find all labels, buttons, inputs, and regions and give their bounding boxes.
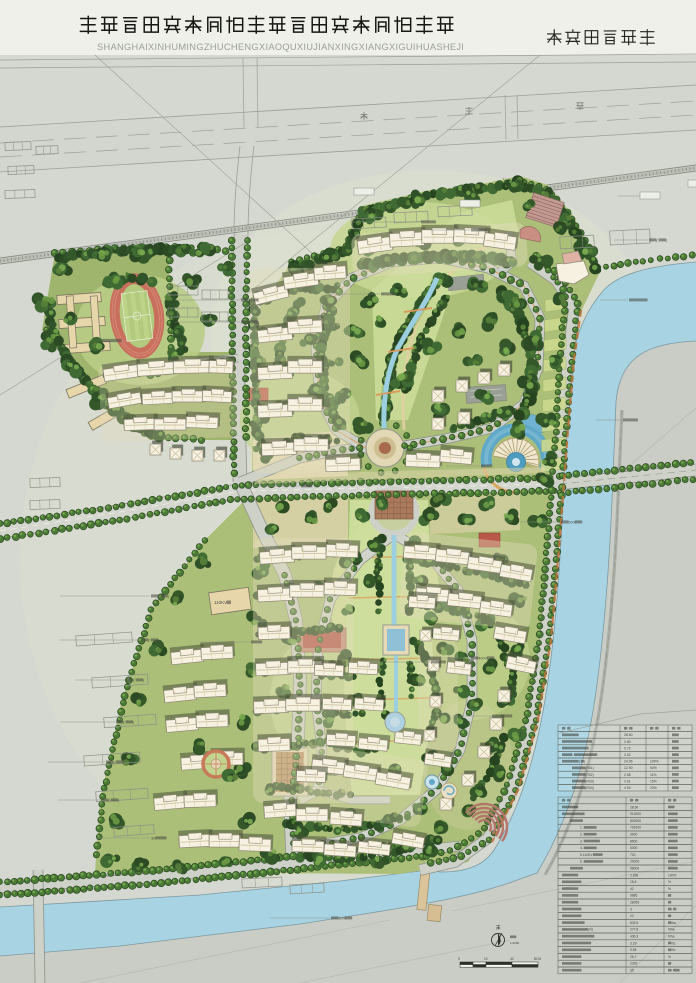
svg-text:28055: 28055 <box>630 901 639 905</box>
svg-text:277.8: 277.8 <box>630 928 638 932</box>
svg-text:100%: 100% <box>668 873 677 877</box>
svg-text:(R04): (R04) <box>585 786 593 790</box>
svg-text:8500: 8500 <box>630 839 638 843</box>
svg-text:5.110KV: 5.110KV <box>580 853 593 857</box>
svg-text:24.06: 24.06 <box>624 760 633 764</box>
svg-text:3.29: 3.29 <box>630 941 637 945</box>
svg-text:1.: 1. <box>580 826 583 830</box>
svg-text:28.60: 28.60 <box>630 805 638 809</box>
svg-text:4.90: 4.90 <box>624 786 631 790</box>
svg-text:5.88: 5.88 <box>630 948 637 952</box>
svg-text:42: 42 <box>630 887 634 891</box>
svg-text:/hc: /hc <box>671 941 676 945</box>
svg-text:2.: 2. <box>580 833 583 837</box>
svg-text:2339: 2339 <box>630 962 638 966</box>
svg-text:833.5: 833.5 <box>630 921 638 925</box>
svg-text:100%: 100% <box>650 760 659 764</box>
svg-text:5300: 5300 <box>630 846 638 850</box>
svg-text:11%: 11% <box>650 773 657 777</box>
svg-text:/ha: /ha <box>671 921 676 925</box>
svg-text:80 M: 80 M <box>534 957 541 961</box>
svg-text:/hc: /hc <box>671 948 676 952</box>
svg-text:30m: 30m <box>338 916 345 920</box>
svg-text:%: % <box>668 887 671 891</box>
svg-text:SHANGHAIXINHUMINGZHUCHENGXIAOQ: SHANGHAIXINHUMINGZHUCHENGXIAOQUXIUJIANXI… <box>97 42 464 52</box>
svg-text:15%: 15% <box>650 779 657 783</box>
svg-text:%: % <box>668 880 671 884</box>
svg-text:6.: 6. <box>580 860 583 864</box>
svg-text:(%): (%) <box>588 928 593 932</box>
svg-text:6885: 6885 <box>630 894 638 898</box>
svg-text:35: 35 <box>630 969 634 973</box>
svg-text:496.3: 496.3 <box>630 935 638 939</box>
svg-text:4.: 4. <box>580 846 583 850</box>
svg-text:791600: 791600 <box>630 826 641 830</box>
svg-text:3.02: 3.02 <box>624 753 631 757</box>
svg-text:): ) <box>584 760 585 764</box>
svg-text:110KV: 110KV <box>214 600 227 605</box>
svg-text:1:2000: 1:2000 <box>510 941 520 945</box>
svg-text:(R01): (R01) <box>585 766 593 770</box>
svg-text:/: / <box>671 907 672 911</box>
svg-text:98000: 98000 <box>630 867 639 871</box>
svg-text:50m: 50m <box>568 520 575 524</box>
svg-text:28.60: 28.60 <box>624 733 633 737</box>
svg-text:0.72: 0.72 <box>624 746 631 750</box>
svg-text:%: % <box>668 955 671 959</box>
svg-text:2.80: 2.80 <box>624 740 631 744</box>
svg-text:3.: 3. <box>580 839 583 843</box>
svg-text:/: / <box>572 753 573 757</box>
svg-text:2.899: 2.899 <box>630 873 638 877</box>
svg-text:400m: 400m <box>478 656 488 660</box>
svg-text:20000: 20000 <box>630 860 639 864</box>
svg-text:54%: 54% <box>650 766 657 770</box>
svg-text:40: 40 <box>510 957 514 961</box>
svg-text:26.7: 26.7 <box>630 955 637 959</box>
svg-text:0: 0 <box>458 957 460 961</box>
svg-text:12.90: 12.90 <box>624 766 633 770</box>
svg-text:2.65: 2.65 <box>624 773 631 777</box>
svg-text:720: 720 <box>630 853 636 857</box>
svg-text:(R02): (R02) <box>585 773 593 777</box>
svg-text:#/ha: #/ha <box>668 935 675 939</box>
svg-text:20%: 20% <box>650 786 657 790</box>
svg-text:3.61: 3.61 <box>624 779 631 783</box>
svg-text:18.6: 18.6 <box>630 880 637 884</box>
svg-text:829200: 829200 <box>630 819 641 823</box>
svg-text:22: 22 <box>630 914 634 918</box>
svg-text:#/ha: #/ha <box>668 928 675 932</box>
svg-text:/: / <box>671 969 672 973</box>
svg-text:919200: 919200 <box>630 812 641 816</box>
svg-text:10: 10 <box>484 957 488 961</box>
svg-text:(R03): (R03) <box>585 779 593 783</box>
svg-text:3: 3 <box>630 907 632 911</box>
svg-text:3000: 3000 <box>630 833 638 837</box>
